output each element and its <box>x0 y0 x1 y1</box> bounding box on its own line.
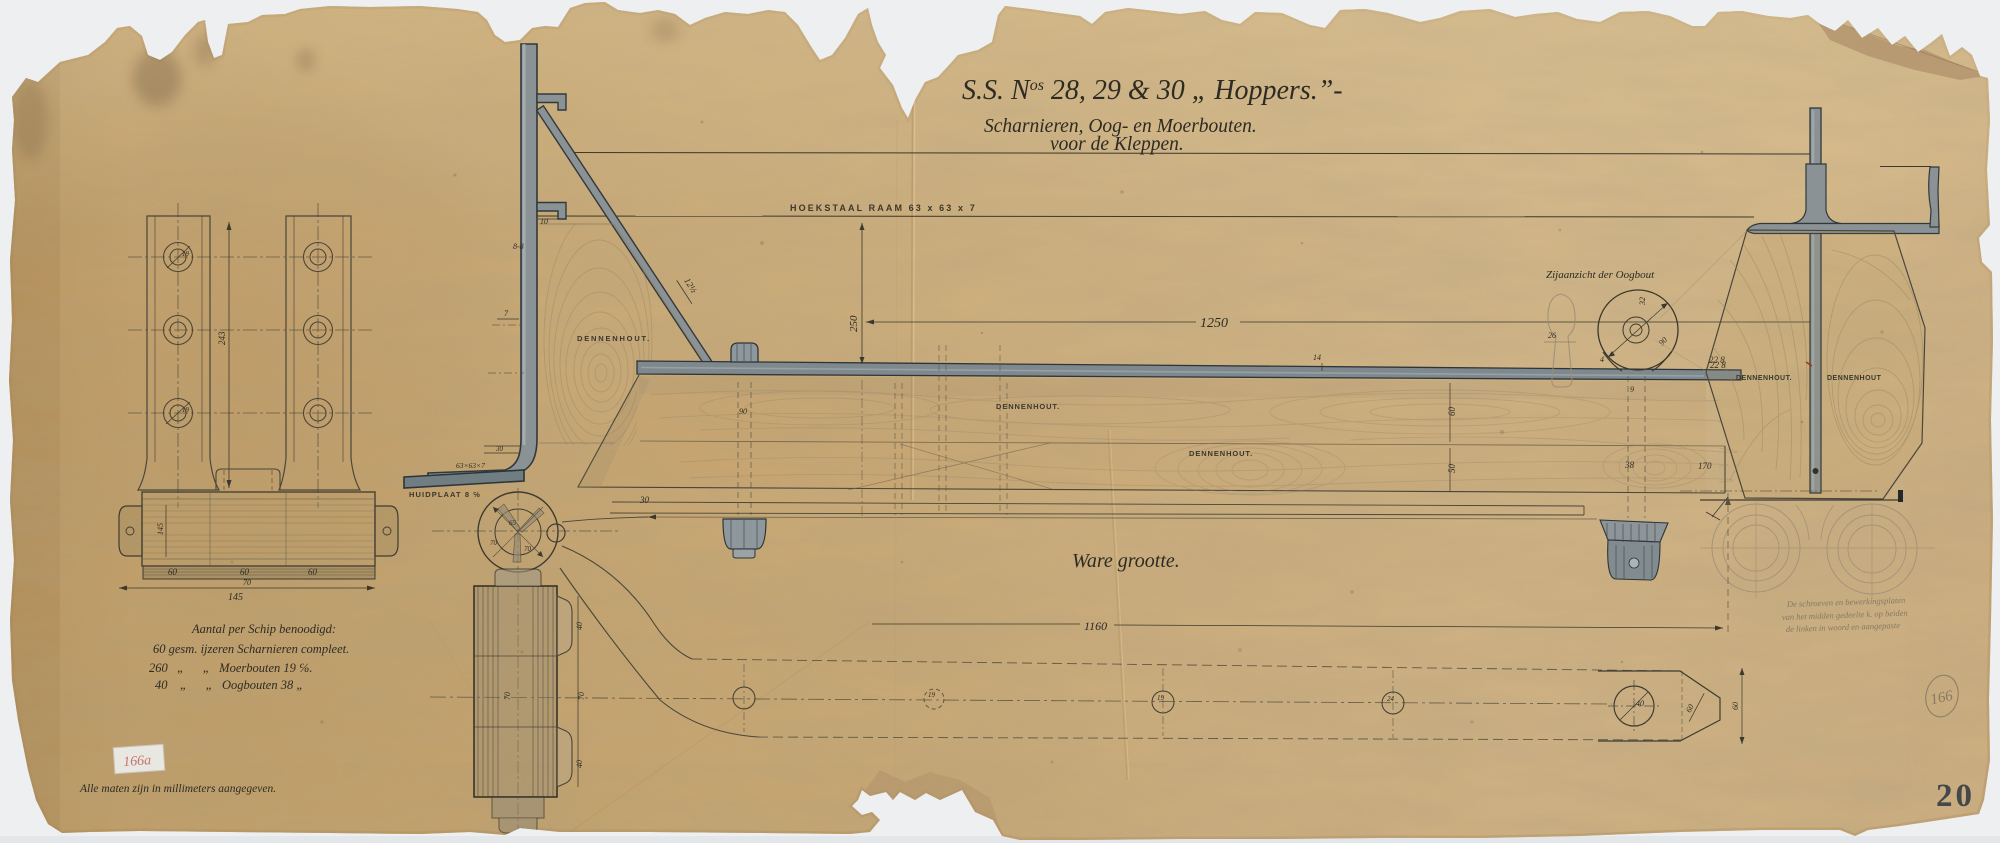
svg-text:32: 32 <box>1638 297 1647 306</box>
svg-text:40: 40 <box>575 760 584 768</box>
svg-text:145: 145 <box>156 523 165 535</box>
svg-text:40: 40 <box>575 622 584 630</box>
svg-text:60: 60 <box>168 567 178 577</box>
svg-text:70: 70 <box>577 692 586 700</box>
svg-text:14: 14 <box>1313 353 1321 362</box>
svg-text:90: 90 <box>739 407 747 416</box>
svg-text:60: 60 <box>1731 702 1740 710</box>
svg-text:DENNENHOUT.: DENNENHOUT. <box>1736 375 1792 382</box>
svg-text:40: 40 <box>1636 699 1644 708</box>
svg-text:HUIDPLAAT 8 ℅: HUIDPLAAT 8 ℅ <box>409 490 481 499</box>
svg-text:70: 70 <box>503 692 512 700</box>
svg-text:26: 26 <box>1548 331 1556 340</box>
svg-text:63×63×7: 63×63×7 <box>456 461 485 470</box>
svg-text:40 „ „ Oogbouten 38: 40 „ „ Oogbouten 38 „ <box>155 678 303 692</box>
svg-text:166a: 166a <box>123 753 152 770</box>
svg-text:38: 38 <box>1624 460 1635 470</box>
svg-text:HOEKSTAAL RAAM 63 x 63 x 7: HOEKSTAAL RAAM 63 x 63 x 7 <box>790 203 977 213</box>
svg-text:70: 70 <box>243 578 251 587</box>
svg-text:24: 24 <box>1387 695 1395 703</box>
svg-text:4: 4 <box>1600 355 1604 364</box>
svg-text:60: 60 <box>240 567 250 577</box>
svg-text:250: 250 <box>848 315 860 332</box>
svg-text:20: 20 <box>1936 778 1975 814</box>
svg-text:8-8: 8-8 <box>513 242 524 251</box>
svg-text:10: 10 <box>540 217 548 226</box>
svg-text:DENNENHOUT.: DENNENHOUT. <box>577 334 651 343</box>
svg-text:DENNENHOUT.: DENNENHOUT. <box>1189 449 1253 458</box>
svg-text:50: 50 <box>1447 464 1457 474</box>
svg-text:70: 70 <box>490 539 498 547</box>
svg-text:19: 19 <box>182 250 190 258</box>
svg-text:30: 30 <box>639 495 650 505</box>
svg-text:60: 60 <box>1447 407 1457 417</box>
svg-text:19: 19 <box>1157 694 1165 702</box>
svg-text:9: 9 <box>1630 385 1634 394</box>
svg-text:Zijaanzicht der Oogbout: Zijaanzicht der Oogbout <box>1546 269 1655 281</box>
svg-text:243: 243 <box>217 331 227 345</box>
svg-text:60 gesm. ijzeren Scharnieren c: 60 gesm. ijzeren Scharnieren compleet. <box>153 642 349 656</box>
svg-text:Alle maten zijn in millimeters: Alle maten zijn in millimeters aangegeve… <box>79 783 276 795</box>
svg-text:voor de Kleppen.: voor de Kleppen. <box>1050 134 1184 155</box>
svg-text:S.S. Nos 28, 29 & 30 „ Hoppers: S.S. Nos 28, 29 & 30 „ Hoppers.”- <box>962 75 1343 106</box>
svg-text:170: 170 <box>1698 461 1712 471</box>
svg-text:65: 65 <box>509 519 517 527</box>
svg-text:Ware grootte.: Ware grootte. <box>1072 550 1180 572</box>
svg-text:1160: 1160 <box>1084 619 1107 633</box>
svg-text:DENNENHOUT: DENNENHOUT <box>1827 375 1882 382</box>
svg-text:22 8: 22 8 <box>1710 360 1726 370</box>
svg-text:60: 60 <box>308 567 318 577</box>
svg-text:145: 145 <box>228 592 243 603</box>
svg-text:1250: 1250 <box>1200 316 1228 331</box>
svg-text:DENNENHOUT.: DENNENHOUT. <box>996 402 1060 411</box>
svg-text:19: 19 <box>182 406 190 414</box>
svg-text:Aantal per Schip benoodigd:: Aantal per Schip benoodigd: <box>191 622 336 636</box>
svg-text:70: 70 <box>524 545 532 553</box>
svg-text:260 „ „ Moerbouten 19: 260 „ „ Moerbouten 19 ℅. <box>149 661 313 675</box>
svg-text:19: 19 <box>928 691 936 699</box>
